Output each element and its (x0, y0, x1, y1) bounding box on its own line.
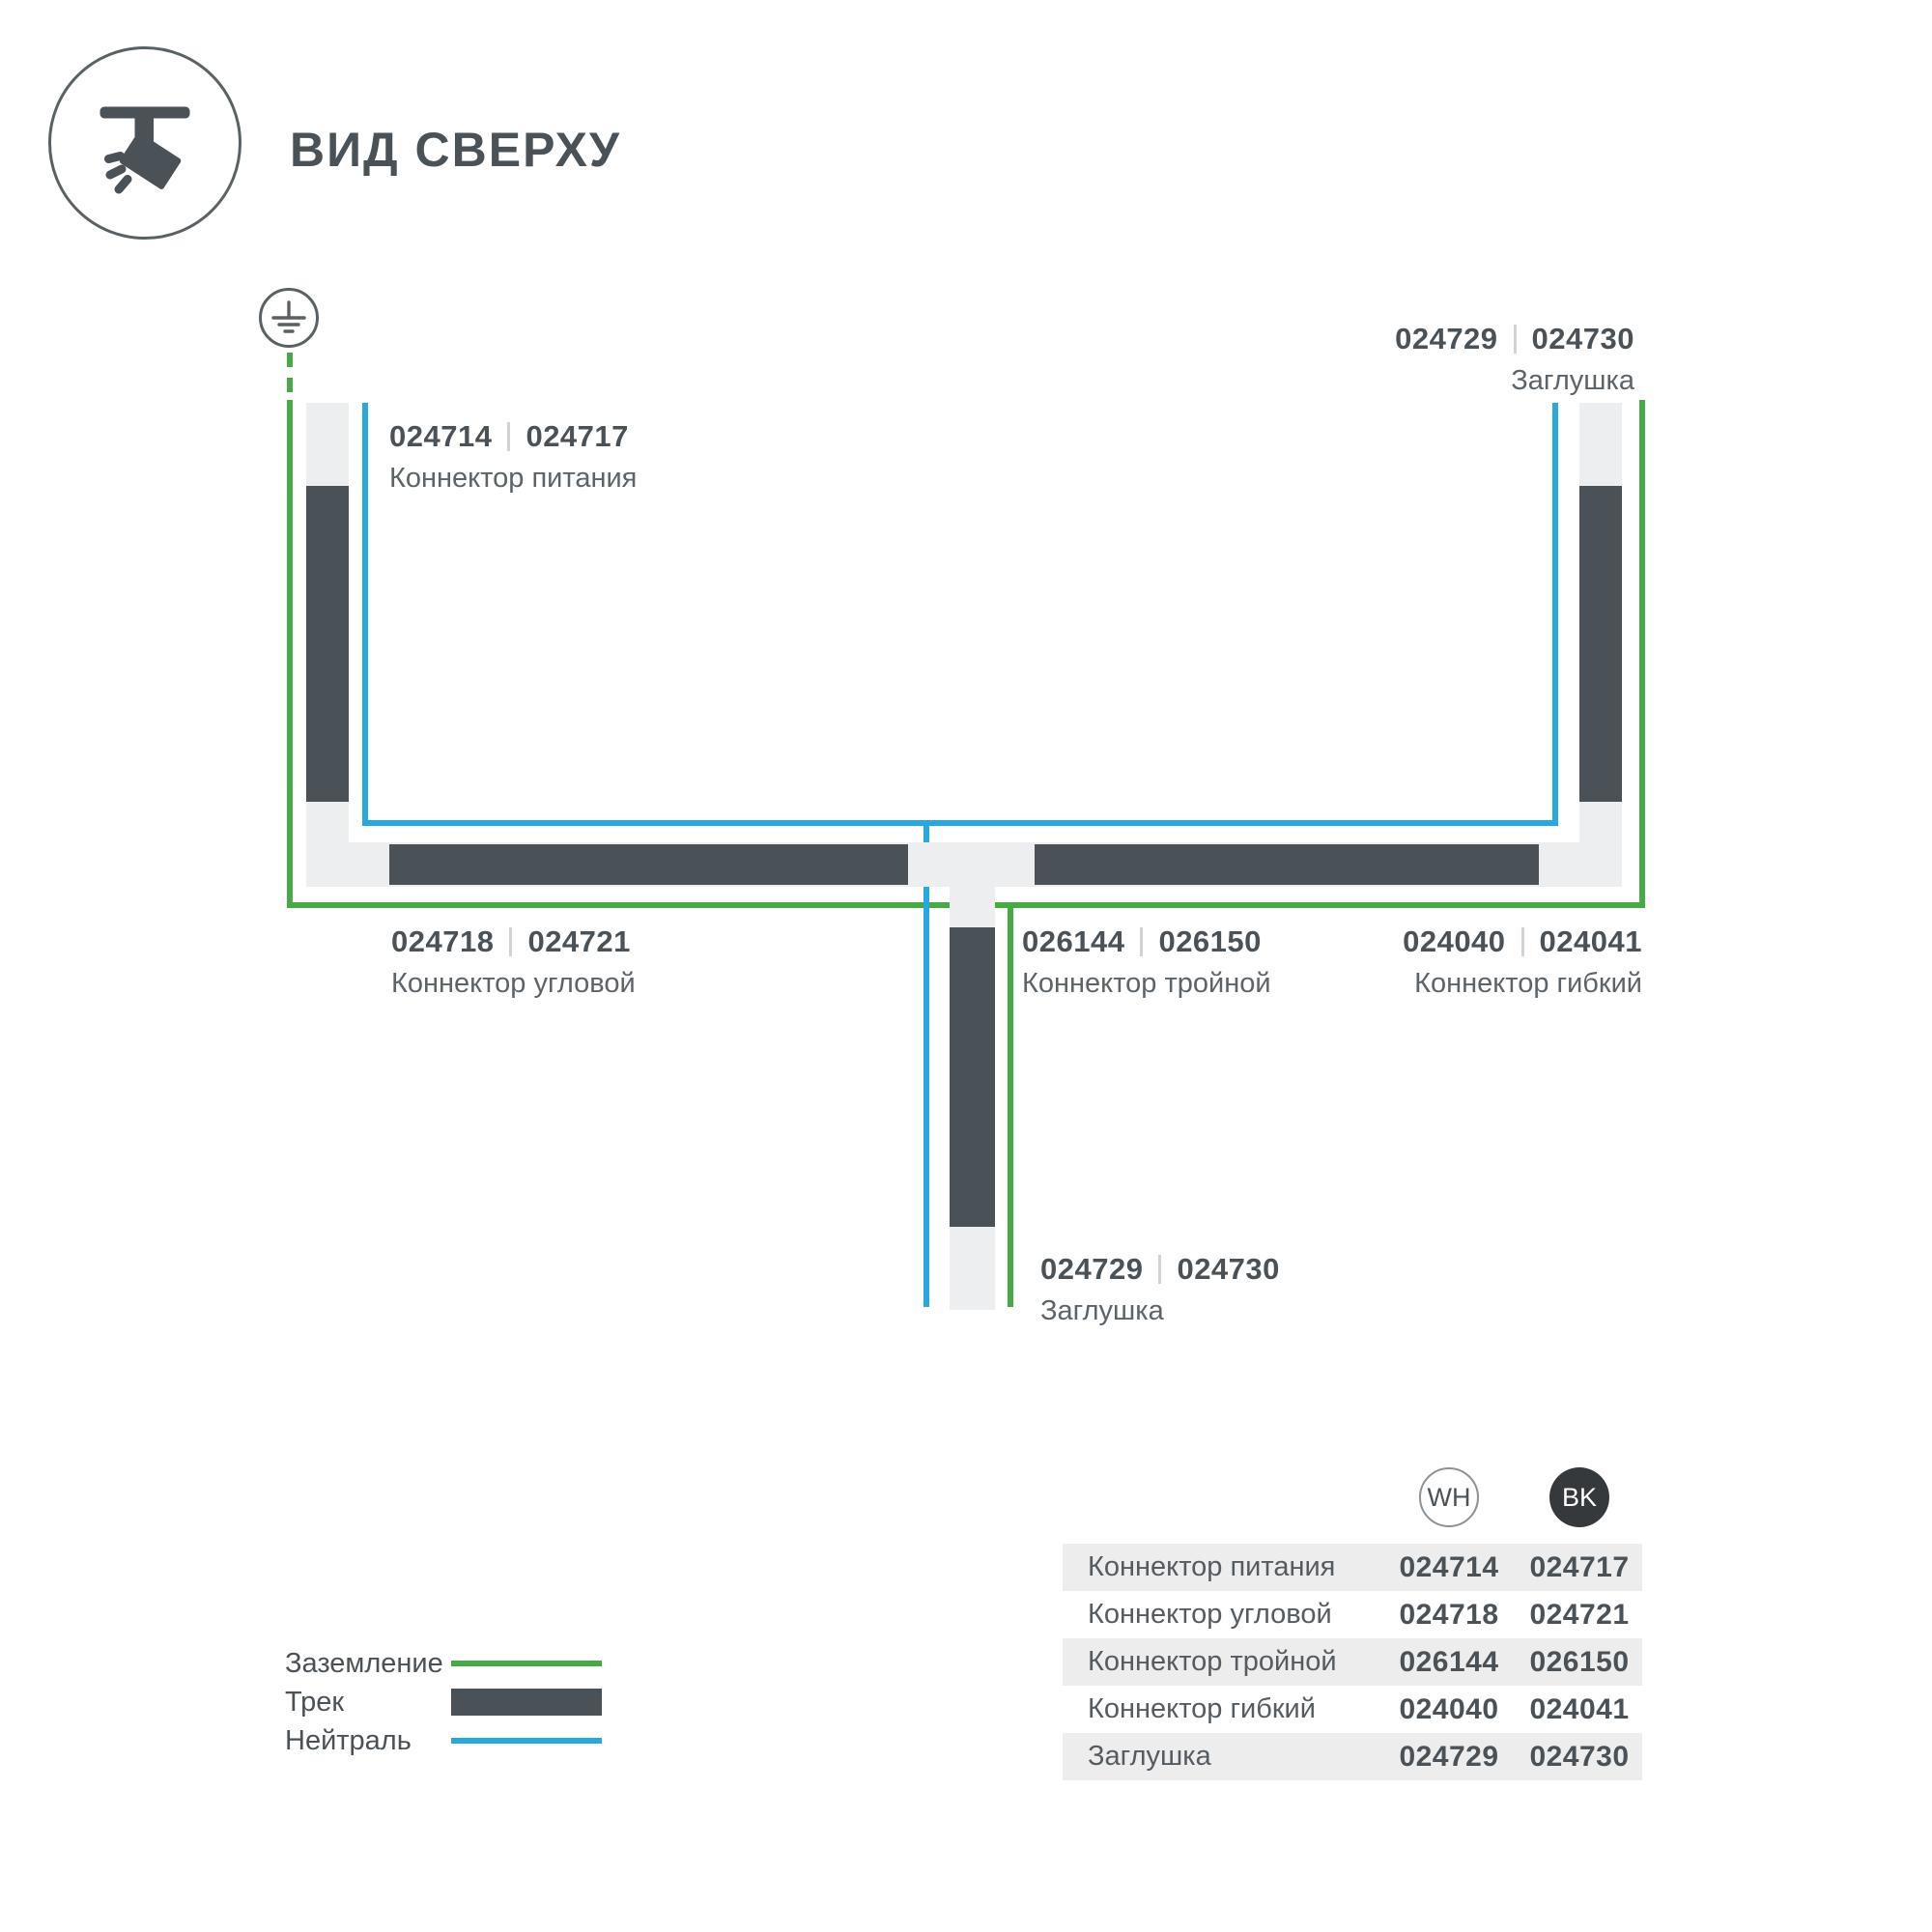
label-codes: 024729 024730 (1395, 322, 1634, 356)
label-flex-connector: 024040 024041 Коннектор гибкий (1403, 924, 1642, 1000)
track-segment-horizontal-right (1035, 844, 1539, 885)
label-name: Заглушка (1395, 365, 1634, 397)
part-code-bk: 024041 (1517, 1693, 1642, 1726)
label-power-connector: 024714 024717 Коннектор питания (389, 419, 637, 495)
color-badge-white: WH (1419, 1467, 1479, 1527)
label-codes: 024714 024717 (389, 419, 637, 454)
top-view-diagram-page: ВИД СВЕРХУ 024714 024717 Коннектор п (0, 0, 1932, 1932)
parts-table-header: WH BK (1063, 1467, 1642, 1527)
track-segment-branch (950, 927, 995, 1227)
code-separator (1521, 927, 1524, 956)
page-title: ВИД СВЕРХУ (290, 122, 621, 178)
legend-item-track: Трек (285, 1683, 602, 1721)
neutral-line-swatch (451, 1738, 602, 1744)
part-code-wh: 024718 (1381, 1599, 1517, 1632)
legend-label: Заземление (285, 1648, 451, 1680)
code-separator (507, 422, 510, 451)
table-row: Коннектор угловой 024718 024721 (1063, 1591, 1642, 1638)
label-codes: 024729 024730 (1040, 1252, 1280, 1287)
label-name: Коннектор питания (389, 463, 637, 495)
label-name: Заглушка (1040, 1295, 1280, 1327)
label-corner-connector: 024718 024721 Коннектор угловой (391, 924, 636, 1000)
table-row: Заглушка 024729 024730 (1063, 1733, 1642, 1780)
part-code-wh: 026144 (1381, 1646, 1517, 1679)
track-segment-horizontal-left (389, 844, 908, 885)
part-code-bk: 024717 (1517, 1551, 1642, 1584)
code-bk: 024730 (1177, 1252, 1279, 1287)
part-code-wh: 024714 (1381, 1551, 1517, 1584)
earth-ground-icon (259, 288, 319, 348)
part-name: Заглушка (1063, 1741, 1381, 1773)
part-name: Коннектор питания (1063, 1551, 1381, 1583)
earth-ground-glyph (266, 295, 312, 341)
legend: Заземление Трек Нейтраль (285, 1644, 602, 1760)
part-code-wh: 024729 (1381, 1741, 1517, 1774)
part-code-wh: 024040 (1381, 1693, 1517, 1726)
code-wh: 024729 (1040, 1252, 1143, 1287)
label-endcap-top: 024729 024730 Заглушка (1395, 322, 1634, 397)
track-segment-left (306, 486, 349, 802)
code-bk: 024717 (526, 419, 628, 454)
code-bk: 024041 (1540, 924, 1642, 959)
code-separator (1158, 1255, 1161, 1284)
parts-table-body: Коннектор питания 024714 024717 Коннекто… (1063, 1544, 1642, 1780)
ground-wire-dashed-lead (287, 353, 293, 401)
header-spacer (1063, 1467, 1381, 1527)
code-separator (1140, 927, 1143, 956)
code-wh: 024729 (1395, 322, 1497, 356)
part-name: Коннектор гибкий (1063, 1693, 1381, 1725)
label-name: Коннектор угловой (391, 968, 636, 1000)
legend-item-neutral: Нейтраль (285, 1721, 602, 1760)
part-name: Коннектор тройной (1063, 1646, 1381, 1678)
legend-label: Нейтраль (285, 1725, 451, 1757)
label-triple-connector: 026144 026150 Коннектор тройной (1022, 924, 1271, 1000)
color-badge-black: BK (1549, 1467, 1609, 1527)
part-code-bk: 024721 (1517, 1599, 1642, 1632)
track-spotlight-icon (48, 46, 241, 240)
code-wh: 024040 (1403, 924, 1505, 959)
table-row: Коннектор тройной 026144 026150 (1063, 1638, 1642, 1686)
track-spotlight-glyph (72, 71, 217, 215)
table-row: Коннектор гибкий 024040 024041 (1063, 1686, 1642, 1733)
part-code-bk: 024730 (1517, 1741, 1642, 1774)
track-bar-swatch (451, 1689, 602, 1716)
label-name: Коннектор гибкий (1403, 968, 1642, 1000)
ground-wire-branch (1008, 905, 1013, 1307)
track-segment-right (1579, 486, 1622, 802)
code-separator (1514, 325, 1517, 354)
code-separator (509, 927, 512, 956)
code-bk: 026150 (1158, 924, 1261, 959)
code-bk: 024721 (527, 924, 630, 959)
legend-label: Трек (285, 1687, 451, 1719)
label-codes: 024040 024041 (1403, 924, 1642, 959)
label-name: Коннектор тройной (1022, 968, 1271, 1000)
code-wh: 026144 (1022, 924, 1124, 959)
label-codes: 024718 024721 (391, 924, 636, 959)
table-row: Коннектор питания 024714 024717 (1063, 1544, 1642, 1591)
neutral-wire-branch (923, 823, 929, 1307)
code-wh: 024718 (391, 924, 494, 959)
code-wh: 024714 (389, 419, 492, 454)
part-code-bk: 026150 (1517, 1646, 1642, 1679)
ground-line-swatch (451, 1661, 602, 1666)
parts-table: WH BK Коннектор питания 024714 024717 Ко… (1063, 1467, 1642, 1780)
code-bk: 024730 (1532, 322, 1634, 356)
legend-item-ground: Заземление (285, 1644, 602, 1683)
label-endcap-bottom: 024729 024730 Заглушка (1040, 1252, 1280, 1327)
part-name: Коннектор угловой (1063, 1599, 1381, 1631)
label-codes: 026144 026150 (1022, 924, 1271, 959)
